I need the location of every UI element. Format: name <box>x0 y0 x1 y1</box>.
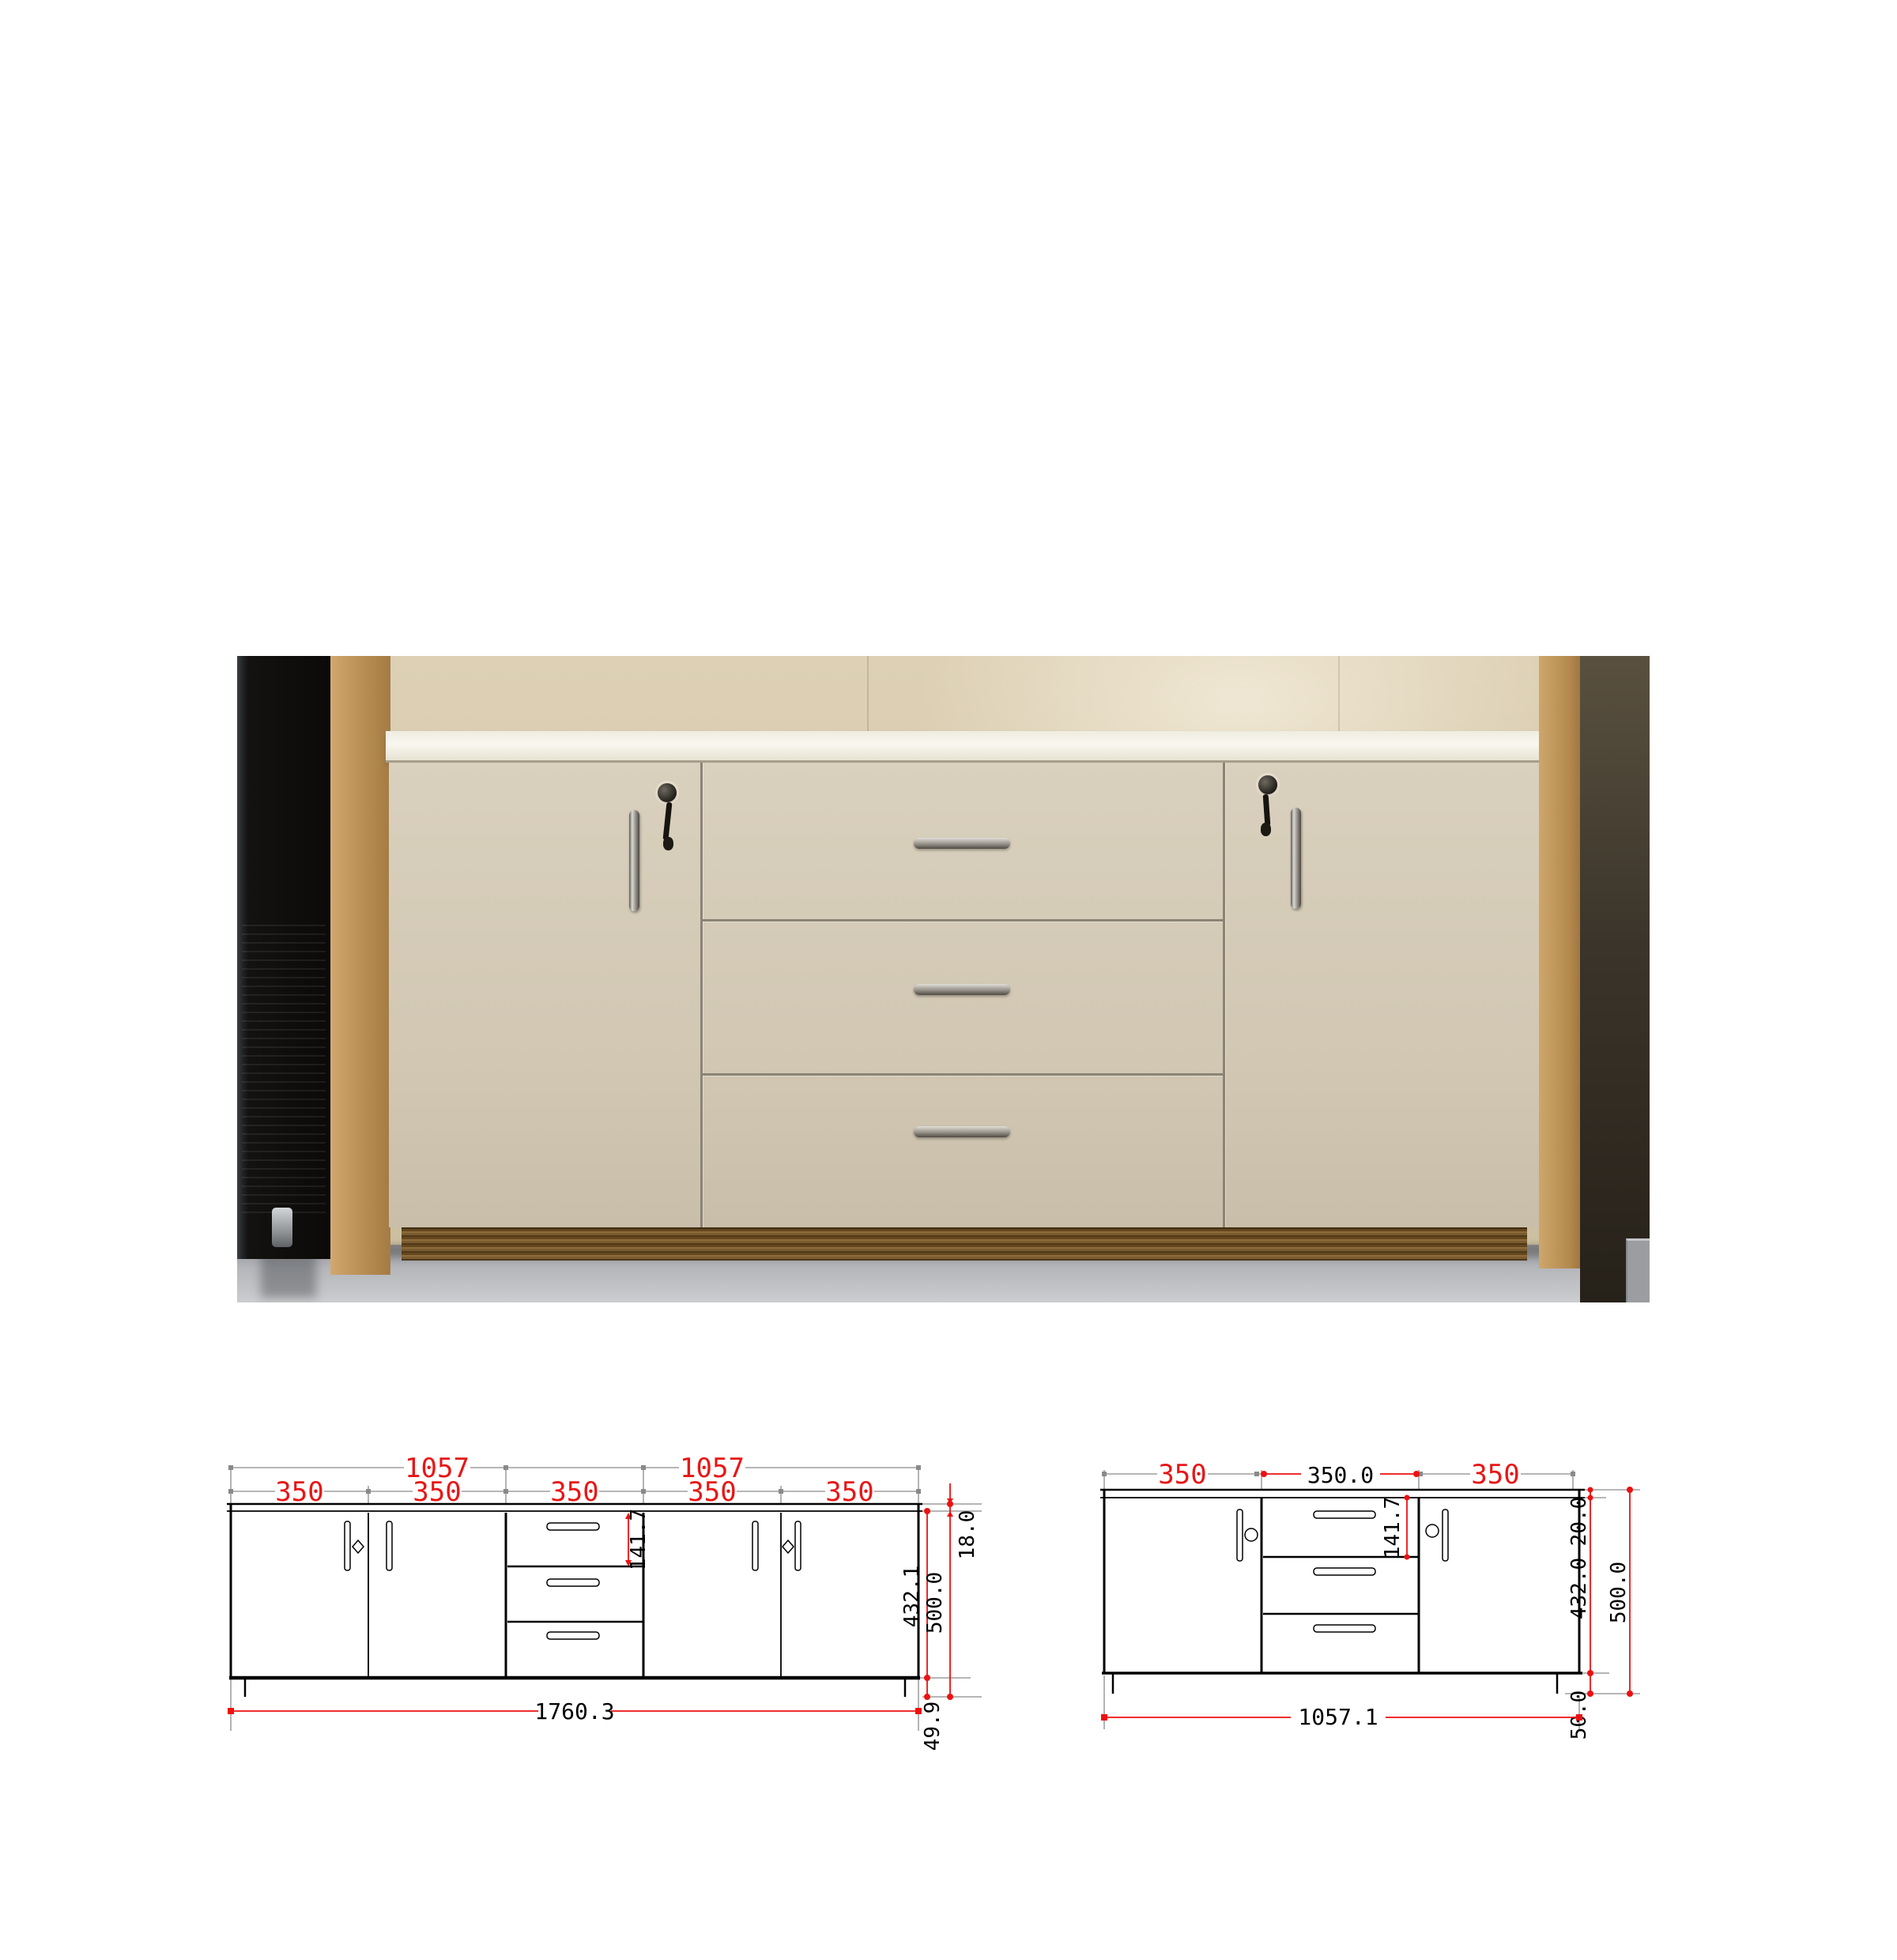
door1-lock-glyph <box>353 1540 364 1553</box>
dim-row-sections: 350 350.0 350 <box>1102 1459 1575 1491</box>
dim-overall-width: 1057.1 <box>1298 1704 1378 1730</box>
dim-overall-width: 1760.3 <box>534 1698 614 1724</box>
dim-overall-height: 500.0 <box>923 1572 947 1634</box>
svg-text:141.7: 141.7 <box>1381 1497 1405 1559</box>
gray-step <box>1626 1238 1650 1302</box>
left-door-key-fob <box>663 837 673 850</box>
dim-carcass-height: 432.0 <box>1567 1558 1591 1619</box>
left-door-lock <box>658 783 677 802</box>
right-door-handle-glyph <box>1443 1510 1448 1561</box>
dim-heights: 20.0 432.0 500.0 50.0 <box>1567 1487 1633 1739</box>
dim-leg-height: 49.9 <box>921 1702 945 1751</box>
right-door-lock <box>1258 775 1277 794</box>
svg-text:141.7: 141.7 <box>627 1509 651 1570</box>
door3-handle-glyph <box>752 1521 758 1570</box>
drawer-handle-top <box>914 838 1010 849</box>
door2-handle-glyph <box>387 1521 392 1570</box>
door4-lock-glyph <box>783 1540 794 1553</box>
drawer3-handle-glyph <box>1314 1625 1375 1632</box>
drawer2-handle-glyph <box>547 1579 599 1586</box>
dim-door-width: 350 <box>1471 1459 1519 1491</box>
right-door-handle <box>1291 808 1301 909</box>
left-door-lock-glyph <box>1245 1528 1258 1541</box>
dim-overall-width-group: 1057.1 <box>1101 1704 1582 1730</box>
black-appliance <box>237 656 330 1259</box>
dark-side-wall <box>1580 656 1650 1302</box>
drawer1-handle-glyph <box>1314 1511 1375 1518</box>
dim-drawer-height: 141.7 <box>1381 1495 1410 1560</box>
dim-counter-thickness: 20.0 <box>1567 1497 1591 1547</box>
unit-elevation-drawing: 350 350.0 350 <box>1051 1446 1676 1778</box>
cabinet-countertop <box>386 731 1542 763</box>
cabinet-body <box>389 763 1539 1227</box>
appliance-vents <box>242 925 326 1216</box>
cabinet-plinth <box>402 1227 1527 1261</box>
dim-overall-width-group: 1760.3 <box>228 1698 922 1724</box>
dim-door-width: 350 <box>1158 1459 1206 1491</box>
dim-overall-height: 500.0 <box>1607 1562 1631 1623</box>
appliance-foot <box>272 1208 292 1247</box>
product-photo <box>237 656 1650 1302</box>
door1-handle-glyph <box>345 1521 350 1570</box>
dim-drawer-height: 141.7 <box>625 1509 651 1570</box>
drawer-divider <box>703 919 1223 922</box>
drawer2-handle-glyph <box>1314 1568 1375 1575</box>
extension-lines <box>1104 1470 1640 1729</box>
right-door-key-fob <box>1261 823 1271 836</box>
drawer-door-divider <box>1223 763 1225 1227</box>
drawer-handle-bottom <box>914 1126 1010 1137</box>
dim-carcass-height: 432.1 <box>900 1566 924 1627</box>
right-door-lock-glyph <box>1426 1525 1439 1537</box>
left-door-handle-glyph <box>1237 1510 1243 1561</box>
photo-cabinet <box>389 731 1539 1259</box>
cabinet-outline <box>1100 1490 1585 1694</box>
wood-pillar-right <box>1539 656 1580 1268</box>
drawer3-handle-glyph <box>547 1632 599 1639</box>
spec-sheet-page: 1057 1057 350 350 350 350 350 <box>0 0 1897 1960</box>
front-elevation-drawing: 1057 1057 350 350 350 350 350 <box>190 1446 988 1778</box>
wood-pillar-left <box>330 656 390 1275</box>
drawer-handle-middle <box>914 984 1010 995</box>
drawer1-handle-glyph <box>547 1523 599 1530</box>
dim-drawer-width: 350.0 <box>1307 1462 1374 1488</box>
drawer-divider <box>703 1073 1223 1076</box>
door4-handle-glyph <box>795 1521 801 1570</box>
dim-counter-thickness: 18.0 <box>956 1510 979 1560</box>
left-door-handle <box>629 810 639 911</box>
cabinet-outline <box>227 1504 922 1697</box>
door-drawer-divider <box>700 763 703 1227</box>
